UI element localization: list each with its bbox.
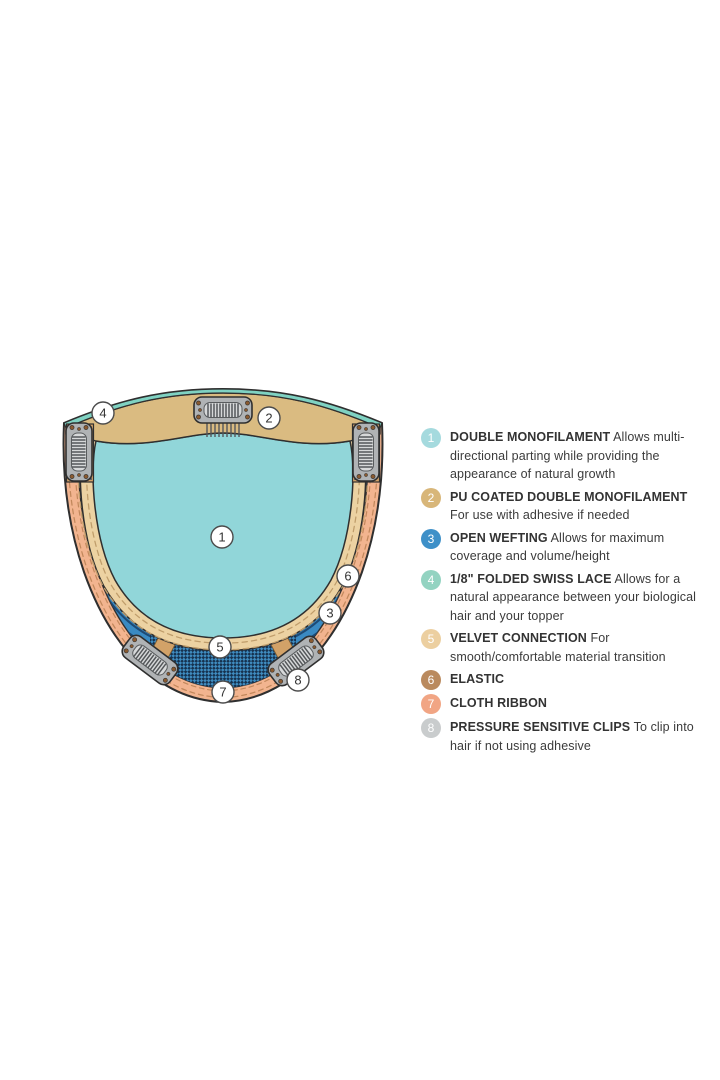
legend-number-badge: 6 [421, 670, 441, 690]
legend-number-badge: 8 [421, 718, 441, 738]
legend-item-pressure-clips: 8 PRESSURE SENSITIVE CLIPS To clip into … [421, 718, 705, 755]
legend-number: 5 [428, 633, 435, 645]
callout-7: 7 [212, 681, 234, 703]
legend-number: 1 [428, 432, 435, 444]
legend-item-swiss-lace: 4 1/8" FOLDED SWISS LACE Allows for a na… [421, 570, 705, 626]
legend-label: ELASTIC [450, 672, 504, 686]
legend: 1 DOUBLE MONOFILAMENT Allows multi-direc… [421, 428, 705, 759]
legend-number: 8 [428, 722, 435, 734]
callout-1: 1 [211, 526, 233, 548]
legend-text: PU COATED DOUBLE MONOFILAMENT For use wi… [450, 488, 700, 525]
callout-8: 8 [287, 669, 309, 691]
legend-label: DOUBLE MONOFILAMENT [450, 430, 610, 444]
callout-4: 4 [92, 402, 114, 424]
legend-item-cloth-ribbon: 7 CLOTH RIBBON [421, 694, 705, 714]
legend-number-badge: 3 [421, 529, 441, 549]
legend-number: 2 [428, 492, 435, 504]
svg-text:2: 2 [265, 411, 272, 426]
legend-number-badge: 4 [421, 570, 441, 590]
legend-text: DOUBLE MONOFILAMENT Allows multi-directi… [450, 428, 700, 484]
svg-text:3: 3 [326, 606, 333, 621]
topper-diagram: 1 2 3 4 5 6 7 8 [55, 380, 395, 710]
callout-5: 5 [209, 636, 231, 658]
legend-text: CLOTH RIBBON [450, 694, 700, 713]
legend-number: 3 [428, 533, 435, 545]
svg-text:4: 4 [99, 406, 106, 421]
svg-text:8: 8 [294, 673, 301, 688]
legend-item-pu-coated: 2 PU COATED DOUBLE MONOFILAMENT For use … [421, 488, 705, 525]
svg-text:1: 1 [218, 530, 225, 545]
legend-text: OPEN WEFTING Allows for maximum coverage… [450, 529, 700, 566]
svg-text:5: 5 [216, 640, 223, 655]
left-clip [66, 423, 92, 481]
legend-number: 7 [428, 698, 435, 710]
legend-number-badge: 1 [421, 428, 441, 448]
legend-text: ELASTIC [450, 670, 700, 689]
legend-item-elastic: 6 ELASTIC [421, 670, 705, 690]
legend-label: OPEN WEFTING [450, 531, 548, 545]
right-clip [353, 423, 379, 481]
legend-text: PRESSURE SENSITIVE CLIPS To clip into ha… [450, 718, 700, 755]
legend-label: PU COATED DOUBLE MONOFILAMENT [450, 490, 687, 504]
callout-3: 3 [319, 602, 341, 624]
legend-number: 4 [428, 574, 435, 586]
legend-number: 6 [428, 674, 435, 686]
callout-6: 6 [337, 565, 359, 587]
legend-text: VELVET CONNECTION For smooth/comfortable… [450, 629, 700, 666]
legend-item-velvet-connection: 5 VELVET CONNECTION For smooth/comfortab… [421, 629, 705, 666]
legend-label: 1/8" FOLDED SWISS LACE [450, 572, 612, 586]
svg-text:7: 7 [219, 685, 226, 700]
legend-description: For use with adhesive if needed [450, 508, 630, 522]
legend-item-double-monofilament: 1 DOUBLE MONOFILAMENT Allows multi-direc… [421, 428, 705, 484]
legend-label: VELVET CONNECTION [450, 631, 587, 645]
legend-label: PRESSURE SENSITIVE CLIPS [450, 720, 630, 734]
callout-2: 2 [258, 407, 280, 429]
page: 1 2 3 4 5 6 7 8 1 DOUBLE MONOFILAMENT Al… [0, 0, 720, 1080]
legend-number-badge: 7 [421, 694, 441, 714]
legend-label: CLOTH RIBBON [450, 696, 547, 710]
legend-item-open-wefting: 3 OPEN WEFTING Allows for maximum covera… [421, 529, 705, 566]
svg-text:6: 6 [344, 569, 351, 584]
legend-number-badge: 2 [421, 488, 441, 508]
legend-number-badge: 5 [421, 629, 441, 649]
legend-text: 1/8" FOLDED SWISS LACE Allows for a natu… [450, 570, 700, 626]
